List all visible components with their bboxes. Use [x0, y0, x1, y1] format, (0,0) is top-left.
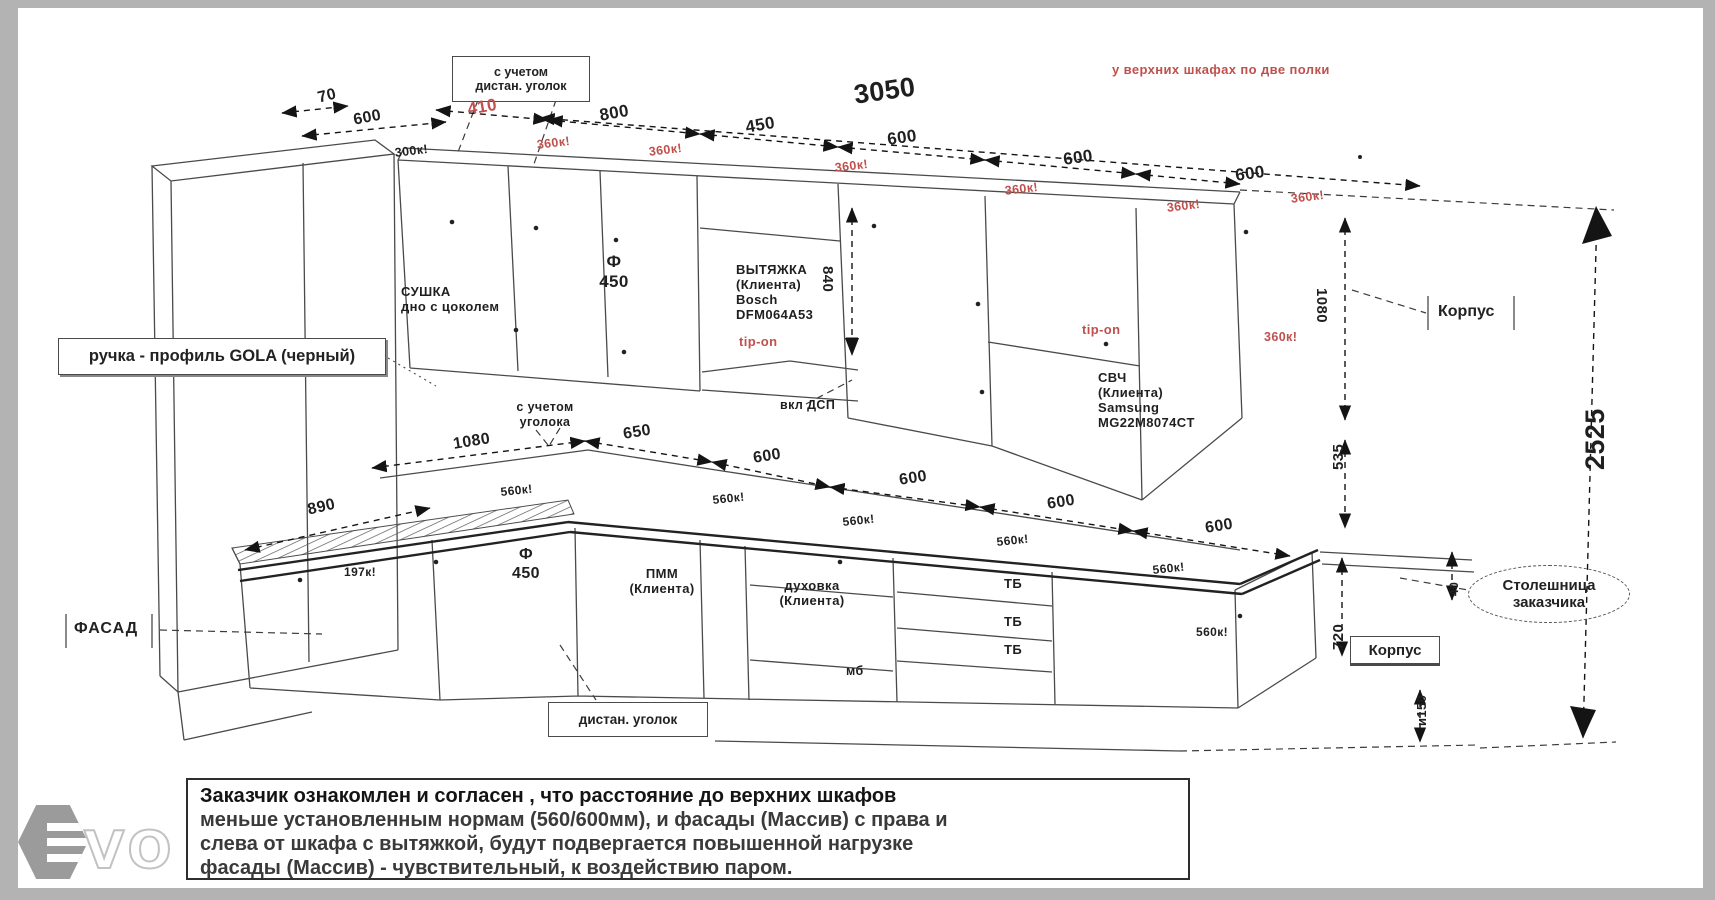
korpus-lower-callout: Корпус: [1350, 636, 1440, 666]
dim-line-600d: [1136, 174, 1240, 184]
dim-line-600f: [830, 487, 980, 507]
fasad-callout: ФАСАД: [74, 620, 138, 638]
label-d600c: 600: [1062, 146, 1094, 170]
label-d535: 535: [1330, 444, 1347, 470]
label-k197: 197к!: [344, 566, 376, 580]
label-k560f: 560к!: [1196, 626, 1228, 640]
label-d1080r: 1080: [1313, 288, 1330, 323]
frame-top: [0, 0, 1715, 8]
evo-logo-text: VO: [84, 821, 176, 881]
label-dsp: вкл ДСП: [780, 398, 835, 413]
countertop-client-callout: Столешница заказчика: [1468, 565, 1630, 623]
label-note-mid: с учетом уголока: [505, 400, 585, 429]
disclaimer-box: Заказчик ознакомлен и согласен , что рас…: [186, 778, 1190, 880]
label-mb: мб: [846, 664, 864, 679]
label-f450u: Ф 450: [584, 252, 644, 291]
label-d150: и150: [1414, 695, 1429, 726]
evo-logo: VO: [18, 805, 268, 885]
note-upper-corner-box: с учетом дистан. уголок: [452, 56, 590, 102]
label-tipon2: tip-on: [1082, 322, 1121, 337]
label-tb1: ТБ: [1004, 576, 1022, 591]
disclaimer-line: Заказчик ознакомлен и согласен , что рас…: [200, 784, 1176, 808]
label-d720: 720: [1330, 624, 1347, 650]
frame-bottom: [0, 888, 1715, 900]
handle-gola-callout: ручка - профиль GOLA (черный): [58, 338, 386, 375]
disclaimer-line: фасады (Массив) - чувствительный, к возд…: [200, 856, 1176, 880]
dim-line-800: [548, 120, 700, 134]
label-hood: ВЫТЯЖКА (Клиента) Bosch DFM064A53: [736, 262, 813, 322]
label-k360g: 360к!: [1264, 330, 1297, 345]
kitchen-drawing-page: с учетом дистан. уголок ручка - профиль …: [0, 0, 1715, 900]
frame-right: [1703, 0, 1715, 900]
disclaimer-line: слева от шкафа с вытяжкой, будут подверг…: [200, 832, 1176, 856]
label-d600d: 600: [1234, 162, 1266, 186]
frame-left: [0, 0, 18, 900]
label-tipon1: tip-on: [739, 334, 778, 349]
label-svch: СВЧ (Клиента) Samsung MG22M8074CT: [1098, 370, 1195, 430]
label-d600b: 600: [886, 126, 918, 150]
cabinet-outlines: [66, 140, 1514, 751]
label-d840: 840: [819, 266, 836, 292]
disclaimer-line: меньше установленным нормам (560/600мм),…: [200, 808, 1176, 832]
dim-line-70: [282, 106, 348, 113]
label-pmm: ПММ (Клиента): [612, 566, 712, 596]
large-arrowheads: [845, 206, 1612, 738]
korpus-upper-callout: Корпус: [1438, 303, 1494, 321]
label-f450b: Ф 450: [496, 546, 556, 583]
label-d40: 40: [1448, 582, 1462, 596]
label-tb3: ТБ: [1004, 642, 1022, 657]
label-d2525: 2525: [1580, 408, 1611, 470]
label-note-top-right: у верхних шкафах по две полки: [1112, 62, 1330, 77]
dim-line-2525: [1583, 212, 1597, 738]
label-sushka: СУШКА дно с цоколем: [401, 284, 499, 314]
note-bottom-corner-box: дистан. уголок: [548, 702, 708, 737]
evo-hexagon-icon: [18, 805, 88, 879]
label-duh: духовка (Клиента): [762, 578, 862, 608]
cabinet-line-drawing: [0, 0, 1715, 900]
label-tb2: ТБ: [1004, 614, 1022, 629]
dim-line-450: [700, 134, 838, 147]
